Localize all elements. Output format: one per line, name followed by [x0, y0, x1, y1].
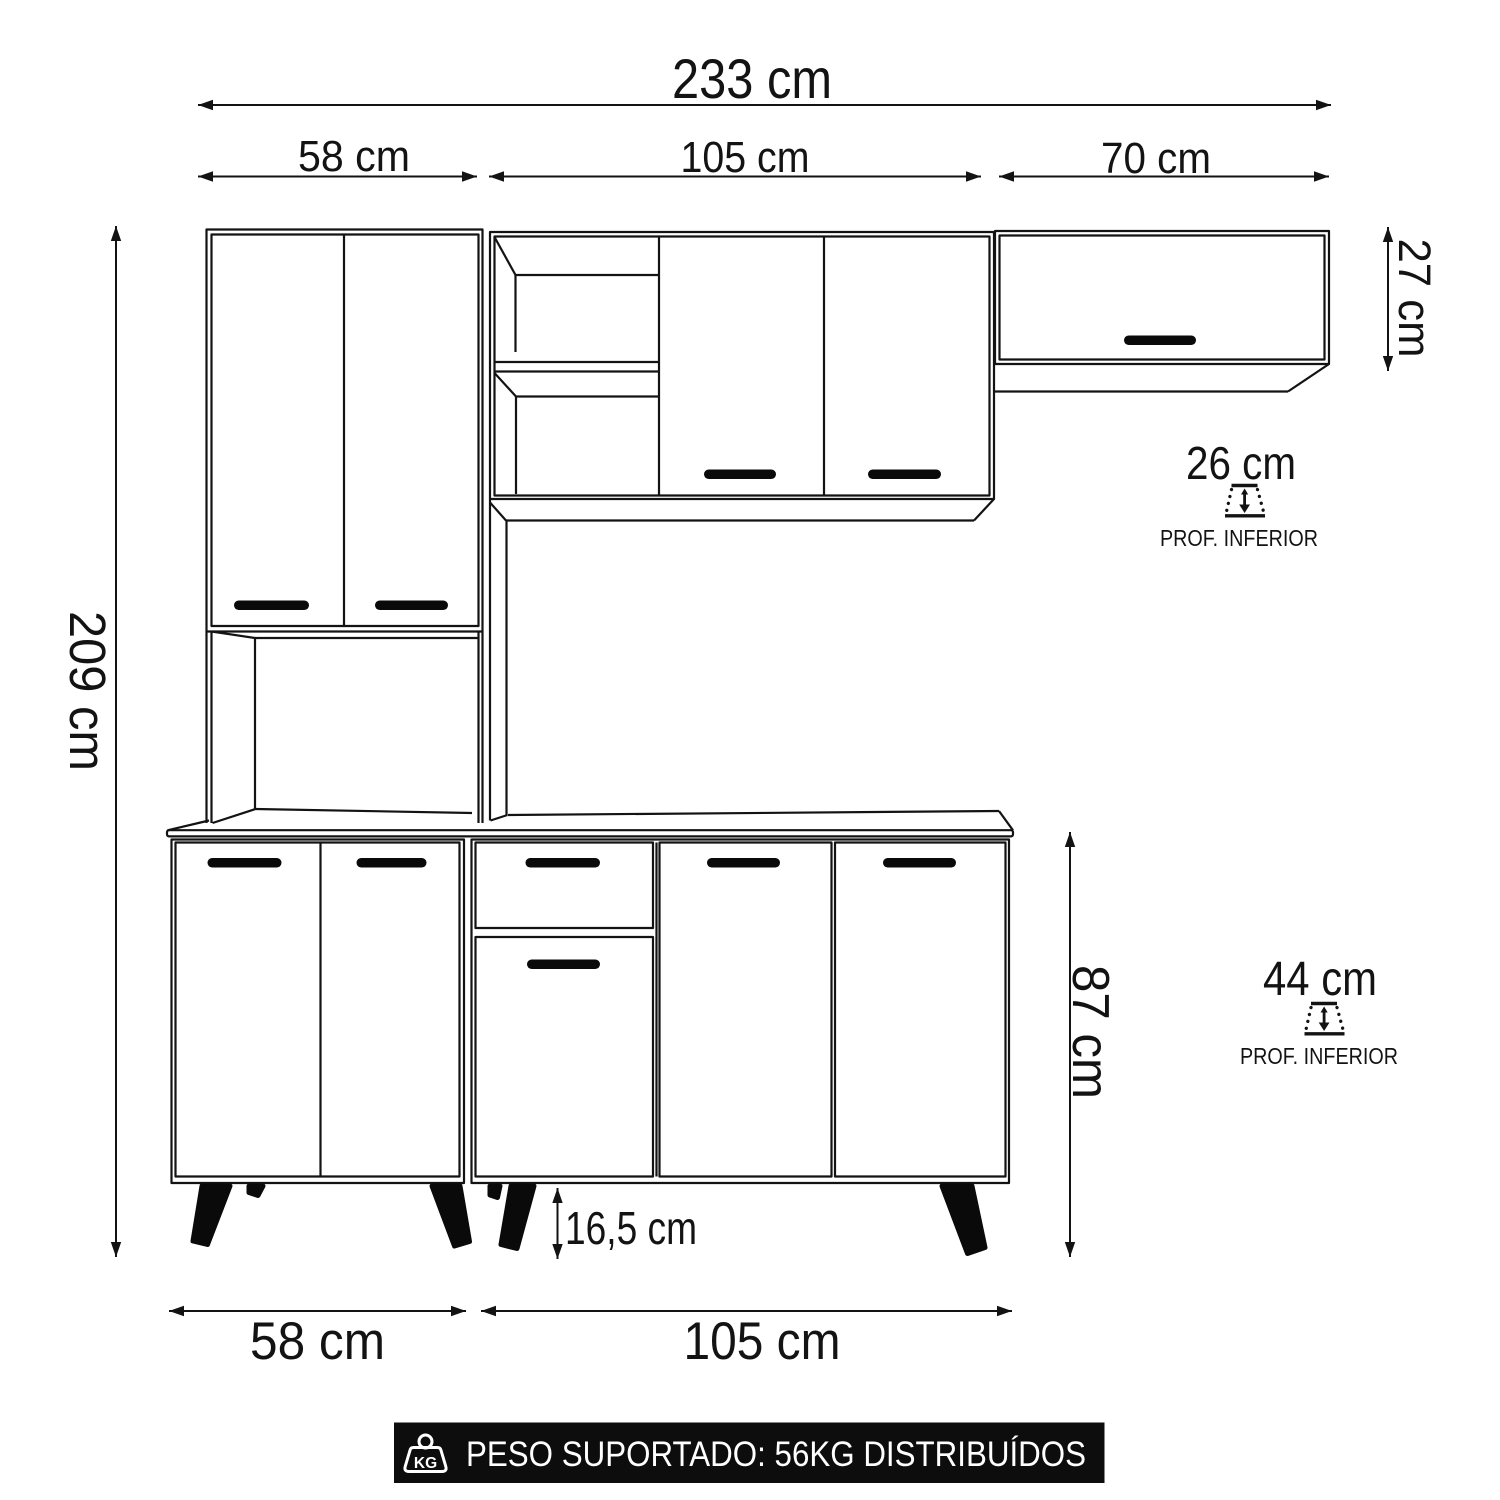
- svg-text:26 cm: 26 cm: [1186, 437, 1296, 489]
- svg-text:16,5 cm: 16,5 cm: [565, 1202, 697, 1254]
- svg-text:KG: KG: [414, 1455, 437, 1472]
- svg-text:27 cm: 27 cm: [1389, 239, 1440, 358]
- svg-text:PESO SUPORTADO: 56KG DISTRIBUÍ: PESO SUPORTADO: 56KG DISTRIBUÍDOS: [466, 1435, 1086, 1474]
- svg-text:233 cm: 233 cm: [672, 47, 832, 110]
- svg-text:209 cm: 209 cm: [59, 611, 116, 771]
- svg-text:87 cm: 87 cm: [1061, 965, 1119, 1099]
- svg-text:105 cm: 105 cm: [684, 1312, 841, 1371]
- svg-text:70 cm: 70 cm: [1101, 134, 1211, 183]
- svg-text:PROF. INFERIOR: PROF. INFERIOR: [1240, 1043, 1398, 1069]
- svg-text:44 cm: 44 cm: [1263, 953, 1377, 1006]
- svg-text:105 cm: 105 cm: [681, 133, 810, 182]
- svg-text:58 cm: 58 cm: [250, 1312, 385, 1371]
- svg-text:58 cm: 58 cm: [298, 132, 410, 181]
- svg-text:PROF. INFERIOR: PROF. INFERIOR: [1160, 525, 1318, 551]
